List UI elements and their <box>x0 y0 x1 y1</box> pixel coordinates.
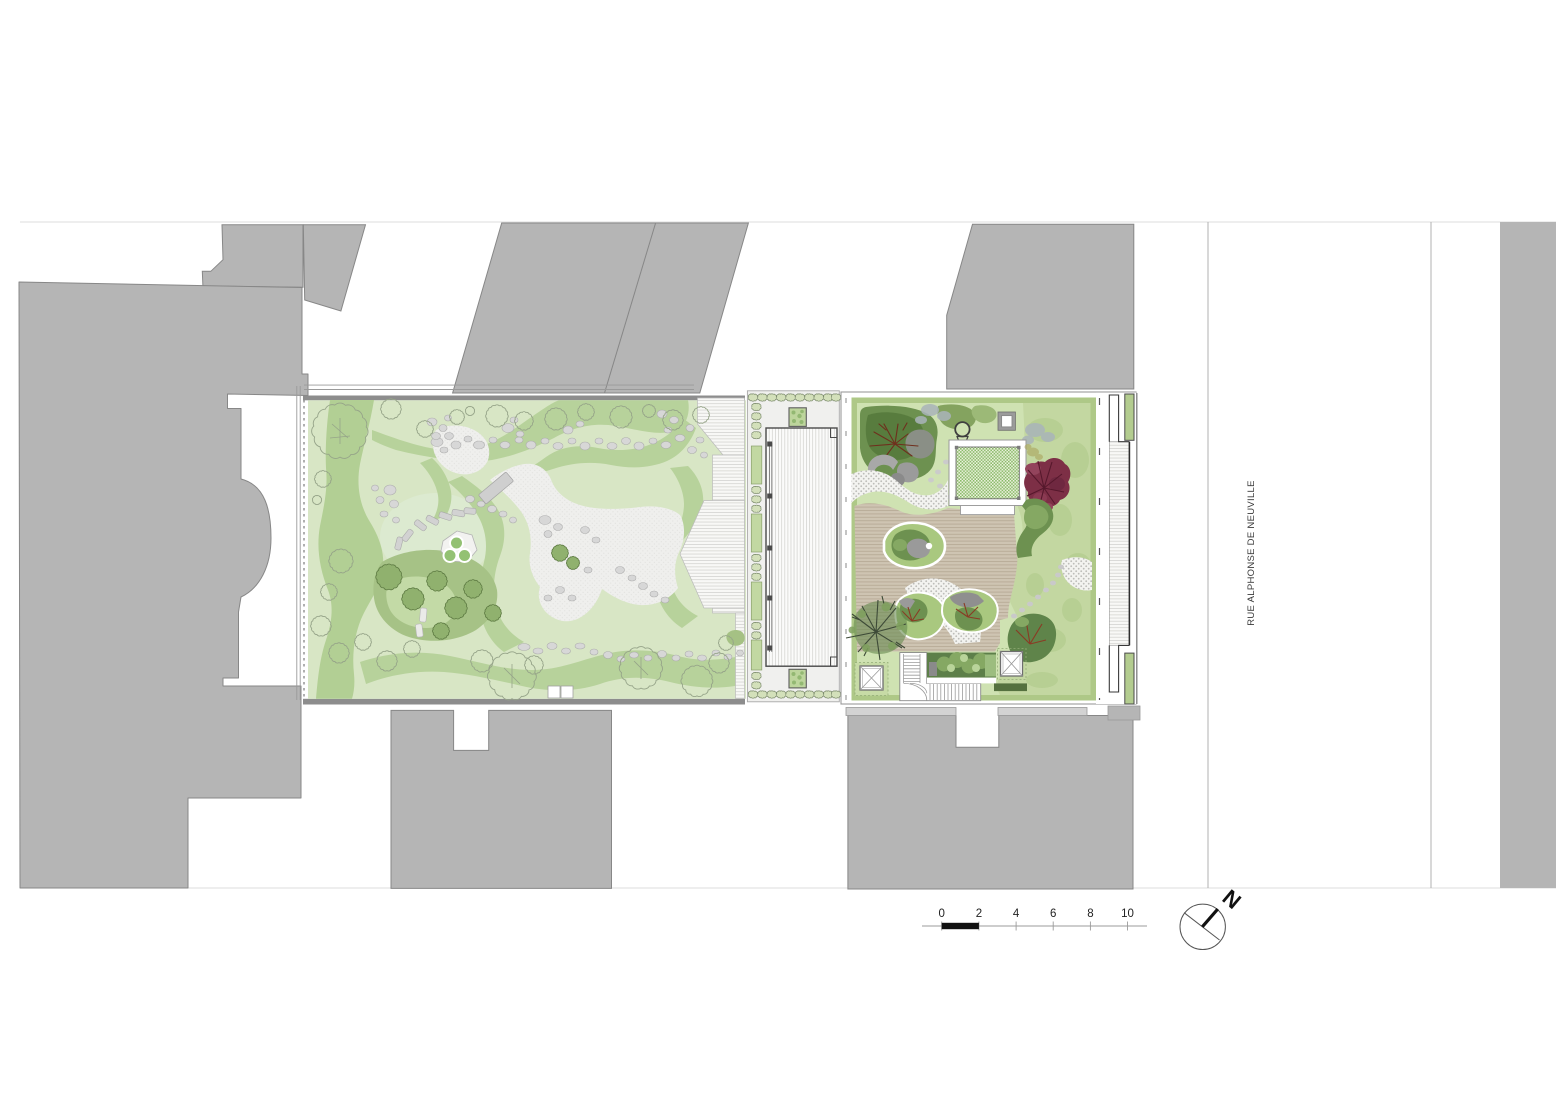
svg-text:2: 2 <box>976 908 982 920</box>
svg-text:10: 10 <box>1121 908 1134 920</box>
svg-text:RUE ALPHONSE DE NEUVILLE: RUE ALPHONSE DE NEUVILLE <box>1246 480 1257 626</box>
svg-text:4: 4 <box>1013 908 1020 920</box>
svg-text:6: 6 <box>1050 908 1056 920</box>
svg-text:0: 0 <box>938 908 944 920</box>
svg-text:8: 8 <box>1087 908 1093 920</box>
